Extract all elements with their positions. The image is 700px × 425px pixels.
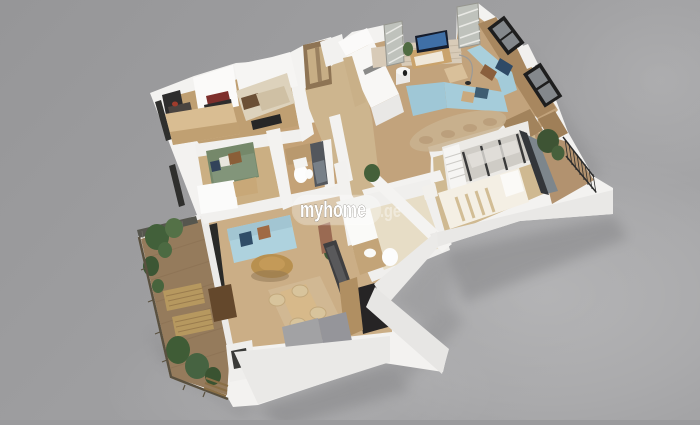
svg-text:myhome: myhome: [300, 197, 366, 222]
svg-text:.ge: .ge: [380, 201, 401, 221]
